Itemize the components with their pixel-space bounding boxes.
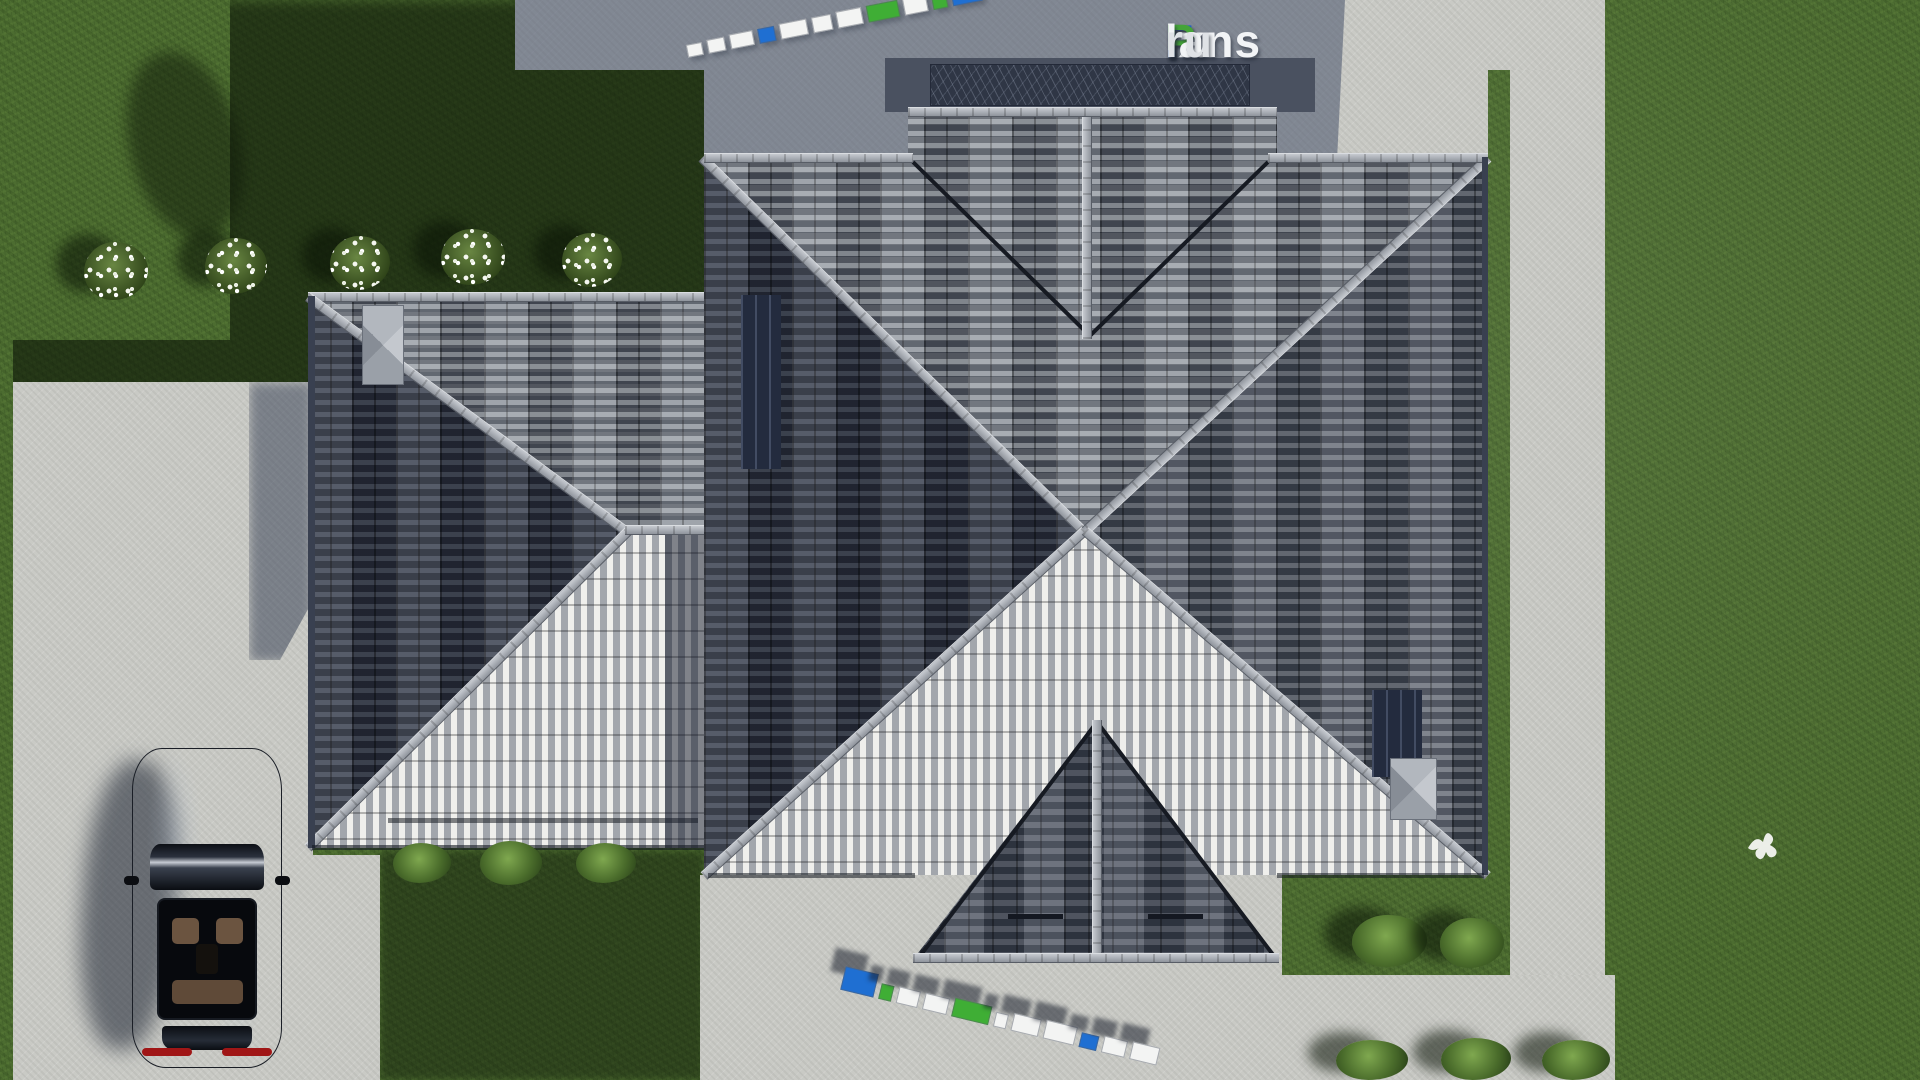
car-taillight-right [222,1048,272,1056]
main-eave-cap-north-right [1268,153,1488,163]
walkway-right [1510,70,1605,975]
north-wing-ridge-cap [1082,107,1092,339]
garage-west-fascia [308,296,315,848]
car-windshield [150,844,264,890]
aerial-house-render: FixPlans.ru [0,0,1920,1080]
garage-chimney [362,305,404,385]
skylight-west [741,295,781,469]
car-taillight-left [142,1048,192,1056]
south-gable-ridge-cap [1092,720,1102,960]
terrace-stone-deck [930,64,1250,106]
watermark-block [757,26,777,44]
garage-roof-shadow-band [665,535,704,848]
south-gable-eave-cap [913,953,1279,963]
north-wing-eave-cap [908,107,1277,117]
car-seat-front-right [216,918,243,944]
garage-roof [308,292,704,852]
watermark-block [878,983,894,1002]
garage-ridge-cap [625,525,704,535]
main-eave-shadow-south-right [1277,873,1484,878]
car-rear-window [162,1026,252,1050]
main-eave-cap-north-left [704,153,913,163]
car-mirror-right [275,876,290,885]
car-console [196,944,218,974]
watermark-block [993,1012,1009,1030]
garage-eave-cap-north [308,292,704,302]
car-seat-front-left [172,918,199,944]
main-eave-shadow-south [708,873,915,878]
bird-icon [1742,826,1788,866]
lawn-shadow-left-strip [380,851,704,1080]
car-mirror-left [124,876,139,885]
south-gable-vent-right [1148,914,1203,919]
logo-letter: ru [1165,14,1213,68]
car-seat-rear [172,980,243,1004]
south-gable-vent-left [1008,914,1063,919]
garage-roof-gutter-line [388,818,698,823]
main-east-fascia [1482,157,1488,875]
car [132,748,282,1068]
main-chimney [1390,758,1437,820]
main-roof [704,107,1488,965]
